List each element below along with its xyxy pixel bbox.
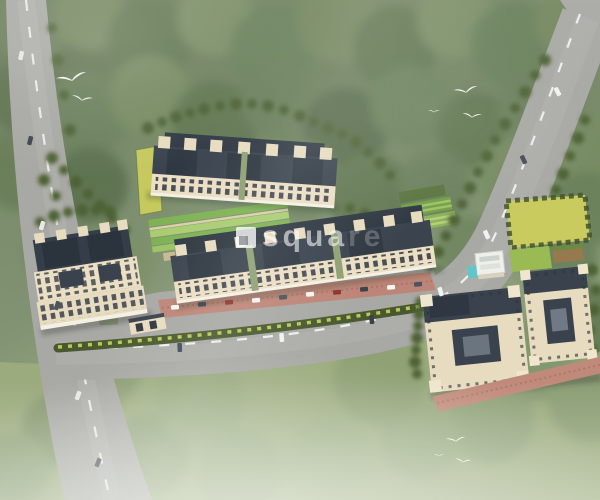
courtyard-building-left <box>420 285 530 393</box>
building-cluster-top <box>146 131 342 212</box>
lawn-east <box>506 195 590 272</box>
aerial-site-render: square <box>0 0 600 500</box>
lawn-east-small <box>509 246 552 272</box>
site-plan-canvas <box>0 0 600 500</box>
courtyard-building-right <box>520 264 598 367</box>
clubhouse-pool <box>467 265 477 278</box>
